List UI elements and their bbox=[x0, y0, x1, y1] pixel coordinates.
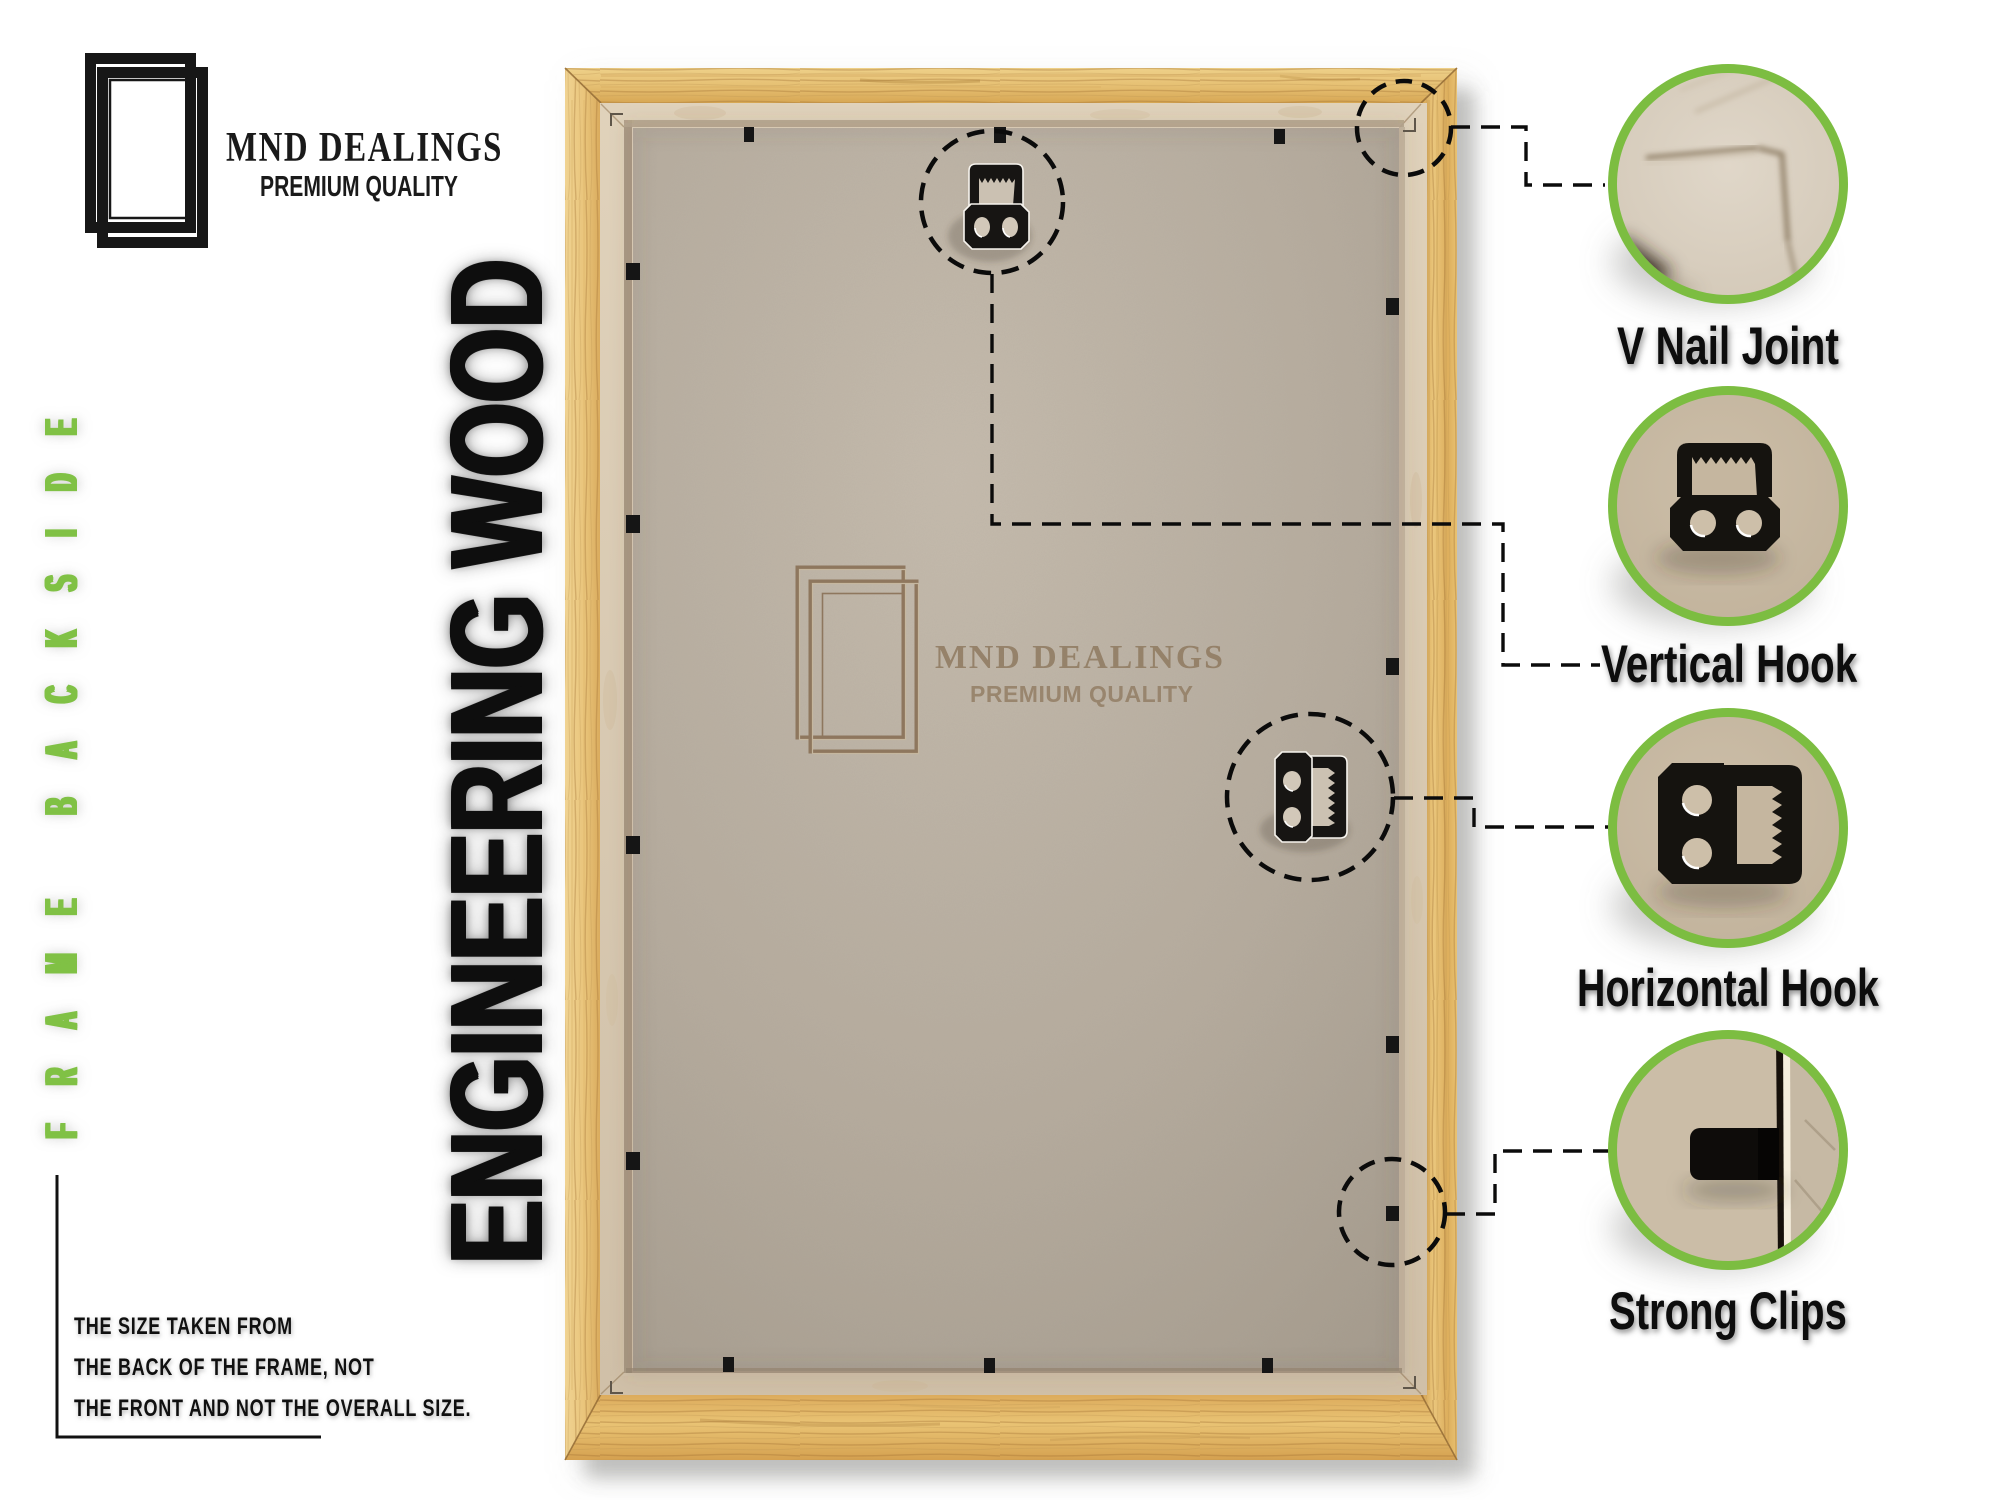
svg-text:MND DEALINGS: MND DEALINGS bbox=[935, 639, 1225, 676]
svg-text:PREMIUM QUALITY: PREMIUM QUALITY bbox=[260, 171, 458, 203]
svg-text:MND DEALINGS: MND DEALINGS bbox=[226, 125, 503, 171]
svg-text:PREMIUM QUALITY: PREMIUM QUALITY bbox=[970, 681, 1193, 707]
